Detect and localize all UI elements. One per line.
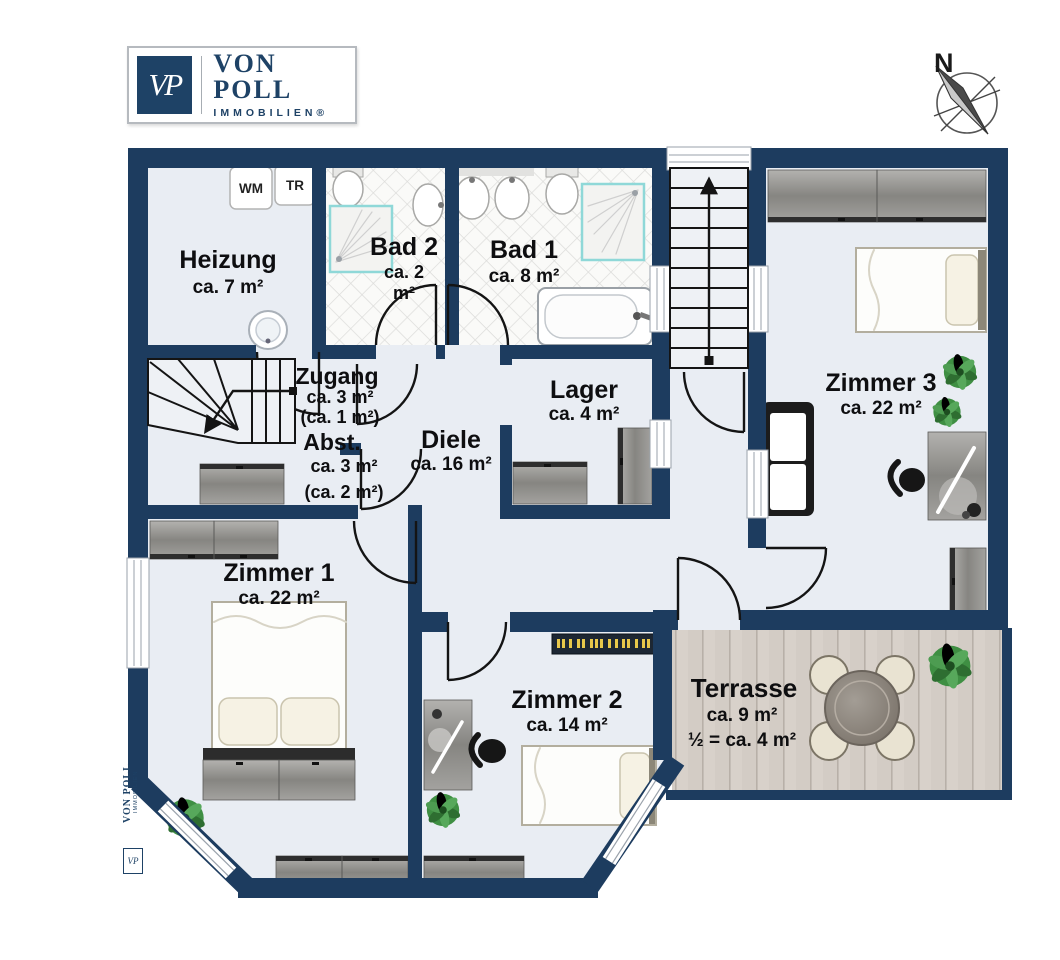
room-area-note-zugang: (ca. 1 m²) [300, 408, 379, 428]
watermark-subtitle: IMMOBILIEN [133, 771, 139, 813]
room-area-terrasse: ca. 9 m² [707, 706, 778, 727]
brand-logo: VP VON POLL IMMOBILIEN® [127, 46, 357, 124]
room-area-note-terrasse: ½ = ca. 4 m² [688, 731, 796, 752]
room-area-lager: ca. 4 m² [549, 405, 620, 426]
room-label-zimmer2: Zimmer 2 [511, 687, 622, 715]
double-bed [203, 602, 355, 760]
brand-name: VON POLL [213, 51, 355, 103]
room-label-terrasse: Terrasse [691, 674, 798, 703]
brand-initials-badge: VP [137, 56, 192, 114]
room-area-bad1: ca. 8 m² [489, 267, 560, 288]
room-label-heizung: Heizung [179, 247, 276, 275]
stairs-up [670, 168, 748, 368]
zimmer3-cabinet [950, 548, 986, 615]
bad2-toilet [333, 167, 363, 207]
room-area-heizung: ca. 7 m² [193, 278, 264, 299]
dryer-label: TR [286, 178, 304, 193]
watermark-name: VON POLL [122, 763, 133, 823]
terrace-seating [810, 656, 914, 760]
window-stair-right [747, 266, 768, 332]
compass-north-label: N [934, 48, 954, 78]
window-corridor [747, 450, 768, 518]
room-area-zimmer1: ca. 22 m² [238, 589, 319, 610]
floorplan-page: WM TR N VP VON POLL IMMOBILIEN® Heizung … [0, 0, 1060, 960]
lager-cabinet-right [618, 428, 652, 504]
room-area-note-abst: (ca. 2 m²) [304, 483, 383, 503]
room-label-lager: Lager [550, 377, 618, 405]
room-label-zimmer3: Zimmer 3 [825, 370, 936, 398]
room-label-abst: Abst. [303, 430, 361, 455]
washing-machine-label: WM [239, 181, 263, 196]
terrace-table [825, 671, 899, 745]
window-stair-top [667, 147, 751, 170]
abst-cabinet [200, 464, 284, 504]
bad1-shower [582, 184, 644, 260]
zimmer1-sideboard [203, 760, 355, 800]
room-area-zimmer2: ca. 14 m² [526, 716, 607, 737]
window-left [127, 558, 149, 668]
single-bed-z3 [856, 248, 986, 332]
logo-divider [201, 56, 203, 114]
room-label-bad1: Bad 1 [490, 237, 558, 265]
piano-keyboard [552, 634, 658, 654]
zimmer1-wardrobe [150, 521, 278, 559]
room-label-diele: Diele [421, 427, 481, 455]
room-area-diele: ca. 16 m² [410, 455, 491, 476]
watermark-initials-badge: VP [123, 848, 143, 874]
bad2-sink [413, 184, 444, 226]
bad1-toilet [546, 167, 578, 214]
room-area-zimmer3: ca. 22 m² [840, 399, 921, 420]
floor-plan: WM TR N [0, 0, 1060, 960]
room-label-bad2: Bad 2 [370, 234, 438, 262]
lager-cabinet-bottom [513, 462, 587, 504]
bathtub [538, 288, 652, 345]
zimmer3-wardrobe [768, 170, 986, 222]
zimmer3-desk [928, 432, 986, 520]
window-lager-right [650, 420, 671, 468]
room-area-zugang: ca. 3 m² [306, 388, 373, 408]
stairs-down [148, 359, 297, 443]
compass-icon: N [934, 48, 1000, 134]
room-area-bad2: ca. 2 m² [372, 262, 436, 303]
room-area-abst: ca. 3 m² [310, 457, 377, 477]
brand-watermark: VON POLL IMMOBILIEN [122, 744, 144, 842]
window-stair-left [650, 266, 671, 332]
sofa [762, 402, 814, 516]
zimmer2-desk [424, 700, 472, 790]
brand-subtitle: IMMOBILIEN® [213, 107, 355, 119]
room-label-zimmer1: Zimmer 1 [223, 560, 334, 588]
room-label-zugang: Zugang [295, 364, 378, 389]
